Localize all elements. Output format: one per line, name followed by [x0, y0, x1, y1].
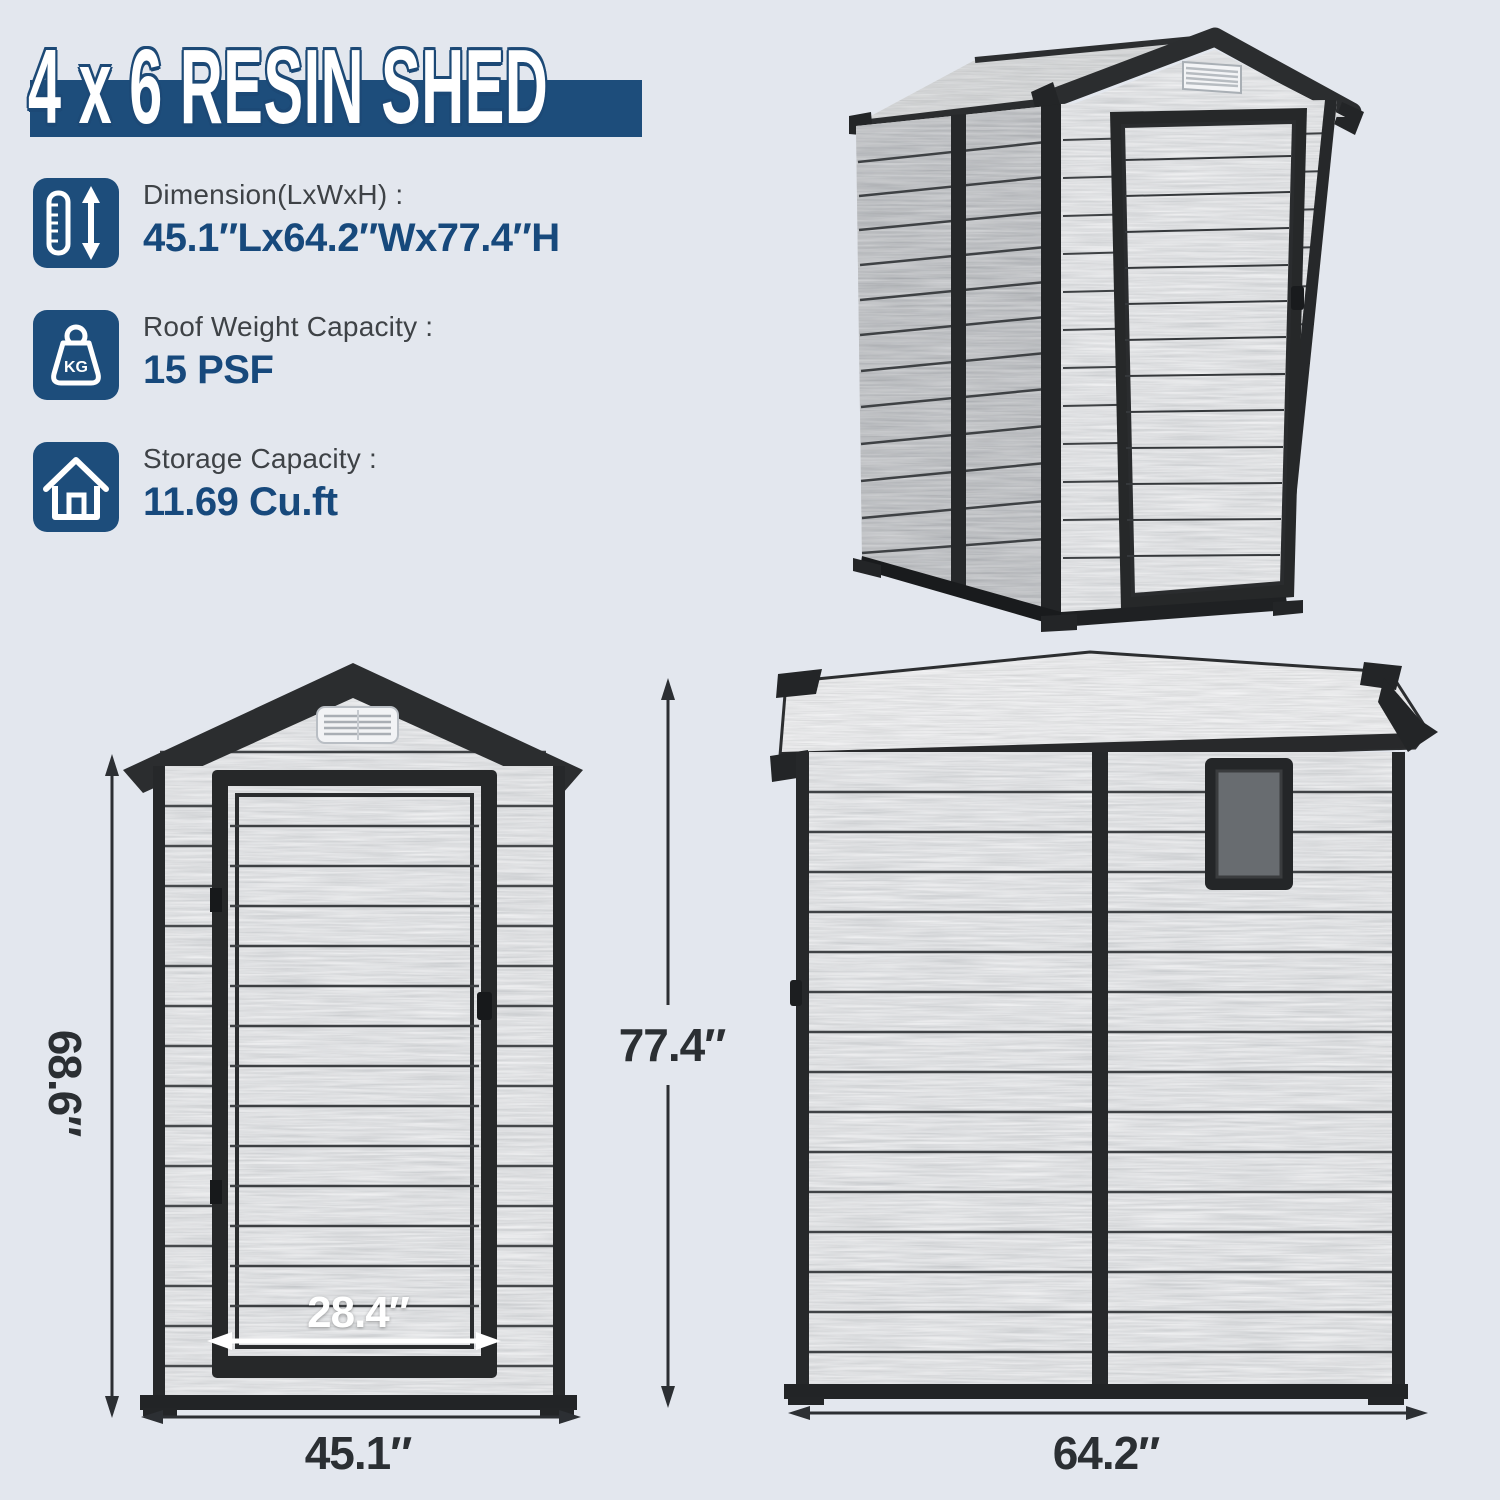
3d-corner-post: [1041, 104, 1063, 614]
dim-label-side-width: 64.2″: [1026, 1428, 1186, 1478]
dim-line-front-height: [98, 752, 128, 1420]
side-wall: [790, 752, 1405, 1384]
front-door-handle: [477, 992, 492, 1020]
3d-door-handle: [1291, 286, 1304, 310]
dim-label-front-width: 45.1″: [278, 1428, 438, 1478]
spec-value: 45.1″Lx64.2″Wx77.4″H: [143, 216, 560, 260]
house-storage-icon: [33, 442, 119, 532]
kg-icon-text: KG: [64, 359, 88, 376]
dim-line-side-width: [786, 1400, 1430, 1426]
3d-left-wall: [856, 106, 1048, 612]
spec-label: Roof Weight Capacity :: [143, 310, 433, 344]
dim-label-overall-height: 77.4″: [592, 1020, 752, 1070]
page-title: 4 x 6 RESIN SHED: [28, 34, 548, 140]
side-window: [1205, 758, 1293, 890]
spec-label: Storage Capacity :: [143, 442, 377, 476]
spec-value: 11.69 Cu.ft: [143, 480, 377, 524]
dim-label-front-height: 68.6″: [40, 1003, 90, 1163]
front-gable-vent: [317, 707, 398, 743]
3d-door: [1110, 108, 1307, 610]
spec-row-storage-capacity: Storage Capacity : 11.69 Cu.ft: [33, 442, 377, 532]
weight-kg-icon: KG: [33, 310, 119, 400]
front-door-hinge: [210, 888, 222, 912]
shed-side-view: [750, 640, 1450, 1420]
height-ruler-icon: [33, 178, 119, 268]
front-door-hinge: [210, 1180, 222, 1204]
front-door: [210, 770, 497, 1378]
shed-3d-view: [845, 20, 1445, 635]
spec-value: 15 PSF: [143, 348, 433, 392]
spec-row-roof-capacity: KG Roof Weight Capacity : 15 PSF: [33, 310, 433, 400]
spec-row-dimension: Dimension(LxWxH) : 45.1″Lx64.2″Wx77.4″H: [33, 178, 560, 268]
spec-label: Dimension(LxWxH) :: [143, 178, 560, 212]
side-door-latch: [790, 980, 802, 1006]
dim-line-door-width: [204, 1328, 504, 1354]
product-infographic: { "title": "4 x 6 RESIN SHED", "specs": …: [0, 0, 1500, 1500]
